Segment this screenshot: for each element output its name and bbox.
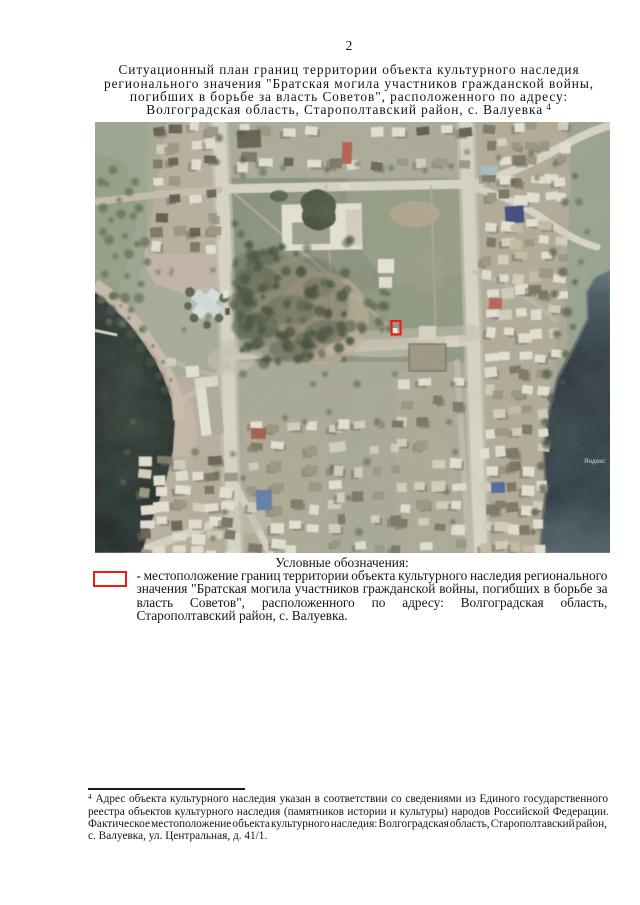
svg-text:Яндекс: Яндекс: [584, 458, 605, 465]
